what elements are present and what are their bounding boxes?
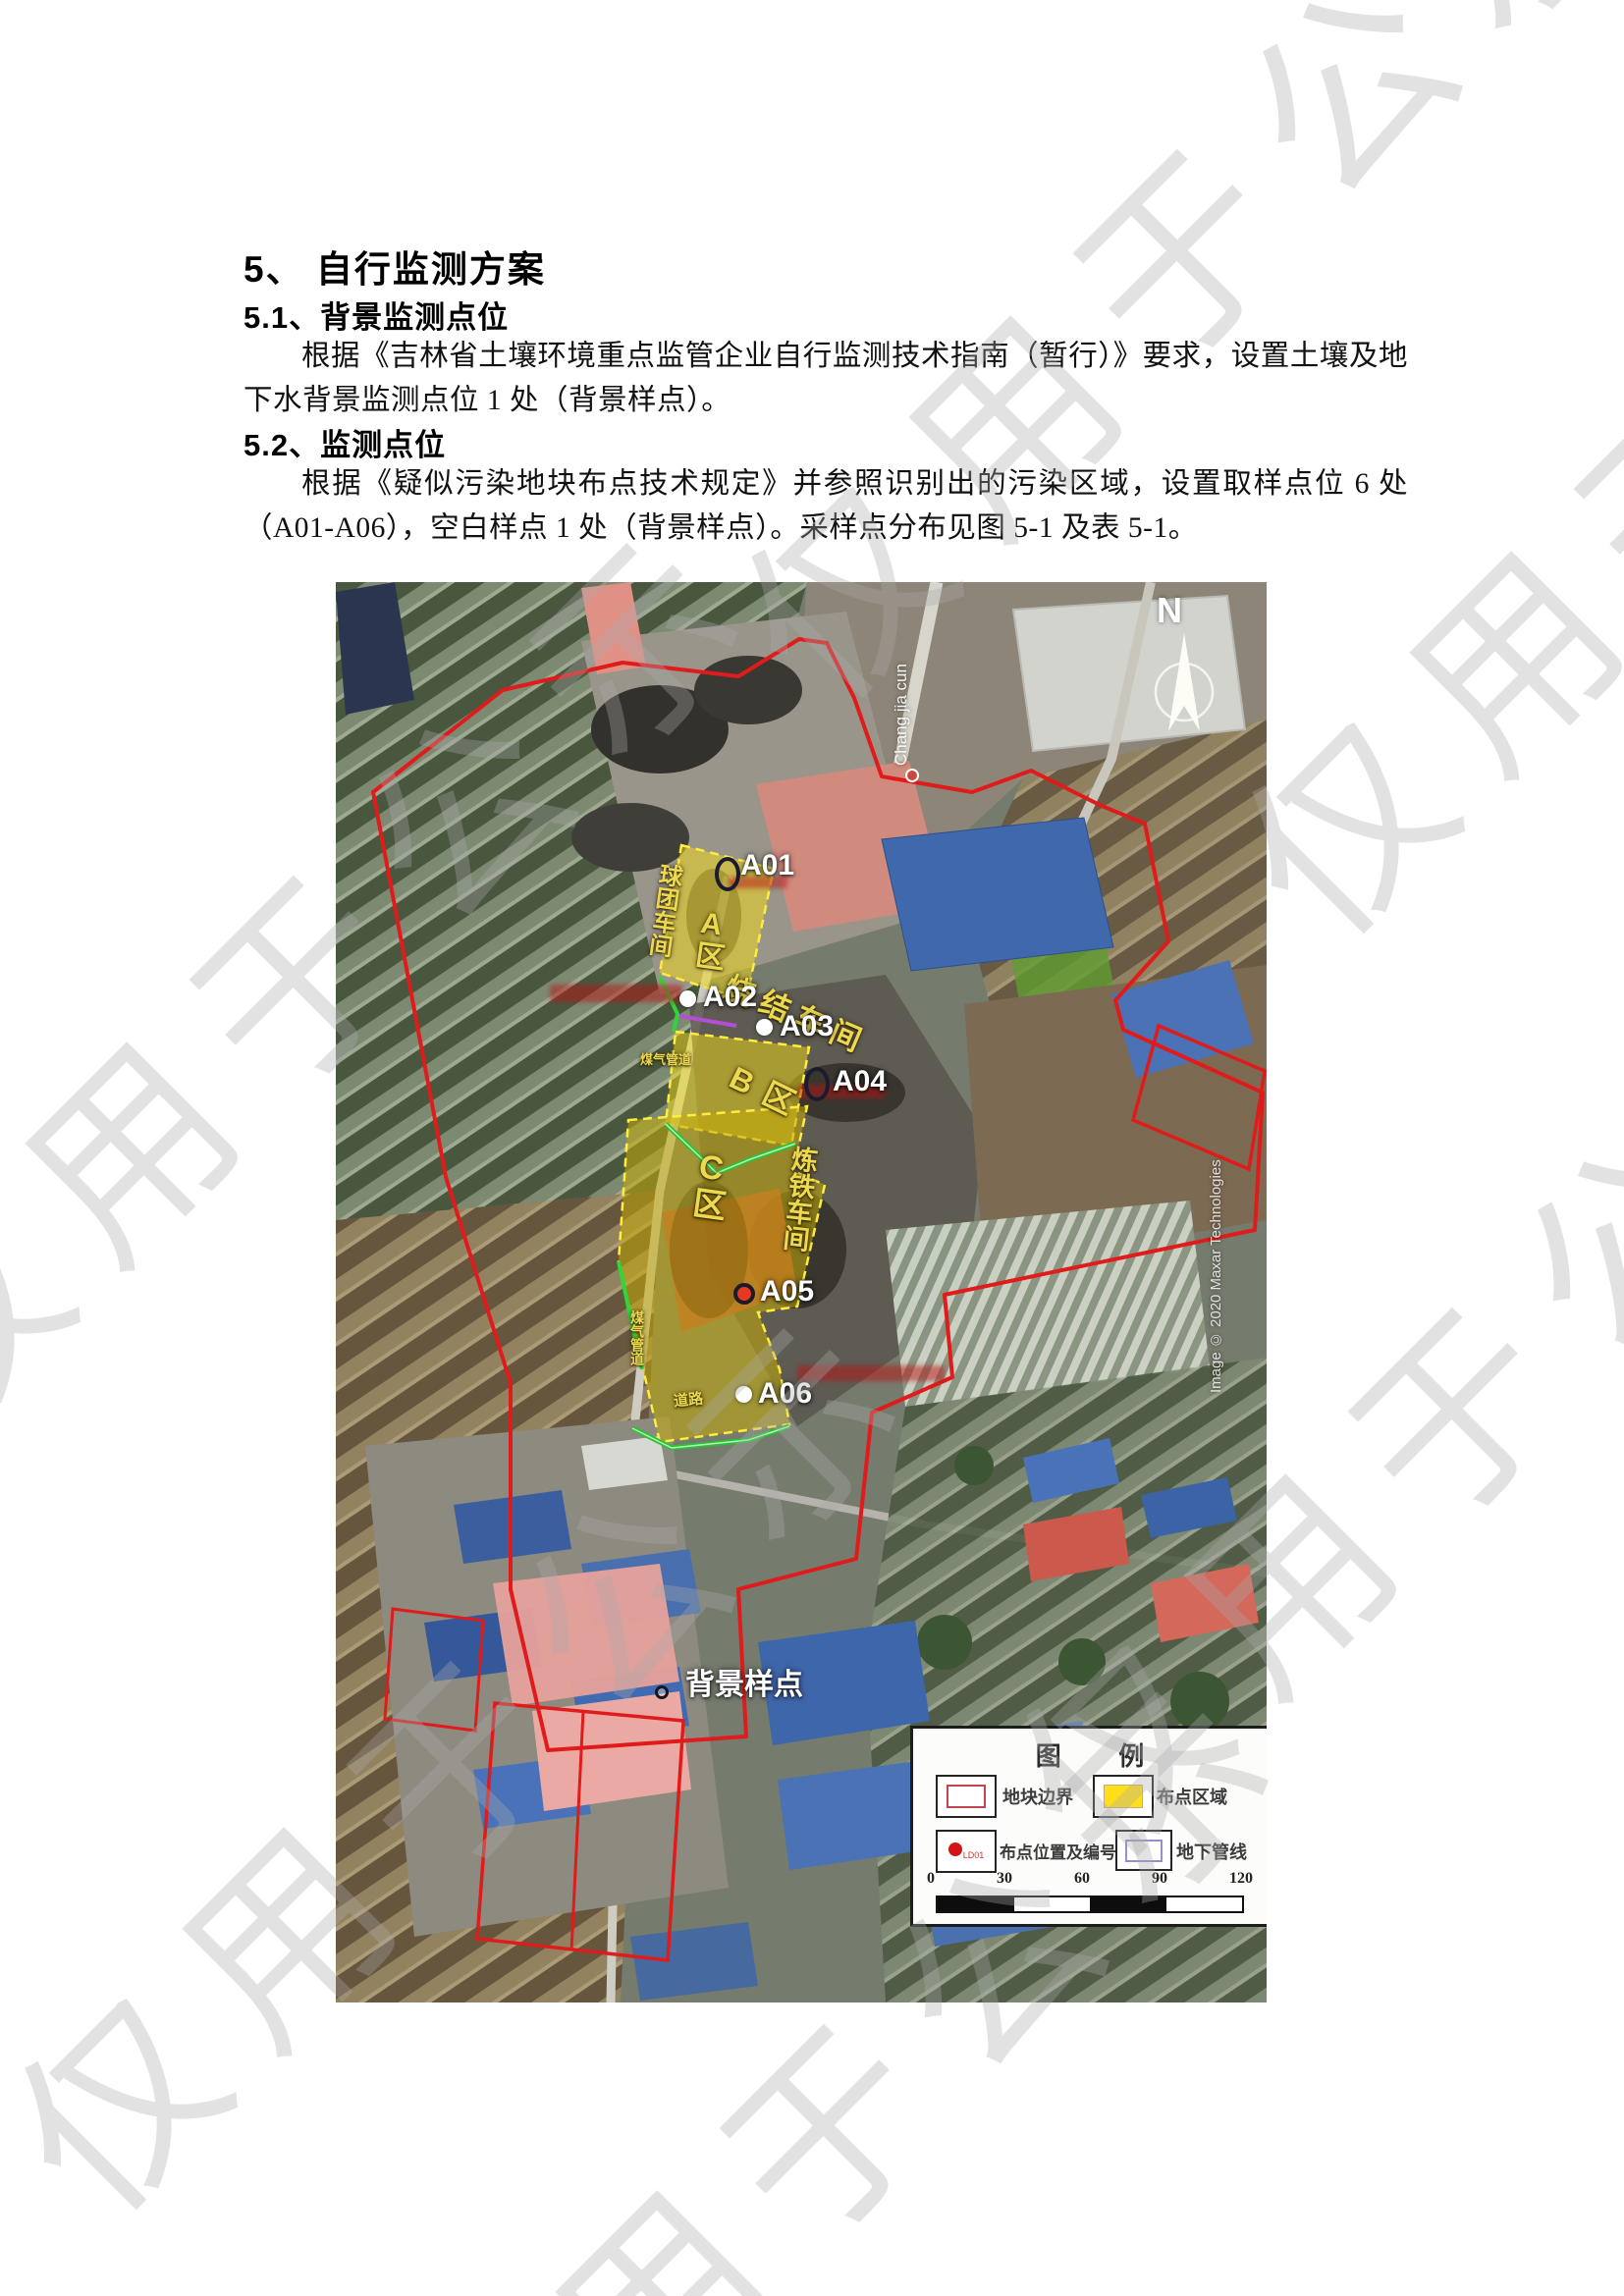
label-road: 道路: [673, 1387, 704, 1411]
subsection-heading-5-2: 5.2、监测点位: [244, 420, 446, 464]
marker-A03: [756, 1019, 773, 1036]
label-gas-pipeline-v: 煤气管道: [627, 1310, 647, 1365]
red-annotation: [797, 1365, 945, 1381]
point-label-background-sample: 背景样点: [685, 1660, 803, 1703]
subsection-heading-5-1: 5.1、背景监测点位: [244, 293, 509, 337]
scale-tick: 90: [1152, 1870, 1167, 1888]
scale-tick: 30: [997, 1870, 1012, 1888]
north-label: N: [1157, 590, 1182, 631]
point-label-A01: A01: [740, 849, 794, 882]
marker-A04: [804, 1067, 830, 1101]
legend-label-sampling-point: 布点位置及编号: [1000, 1839, 1116, 1863]
label-gas-pipeline-h: 煤气管道: [640, 1049, 691, 1068]
legend-swatch-site-boundary: [936, 1775, 997, 1818]
report-page: 5、 自行监测方案 5.1、背景监测点位 根据《吉林省土壤环境重点监管企业自行监…: [0, 0, 1624, 2296]
red-annotation: [550, 985, 682, 1002]
north-arrow-icon: [1145, 631, 1223, 754]
marker-A02: [679, 990, 696, 1007]
point-label-A06: A06: [758, 1377, 812, 1411]
zone-a-label: A区: [683, 905, 734, 973]
section-heading: 5、 自行监测方案: [244, 240, 546, 293]
legend-label-underground-pipeline: 地下管线: [1176, 1839, 1247, 1864]
zone-c-label: C区: [680, 1147, 738, 1223]
marker-A05: [733, 1283, 755, 1305]
legend-red-dot-icon: [948, 1842, 962, 1856]
marker-background-sample: [655, 1685, 669, 1699]
map-pin-icon: [905, 769, 919, 782]
point-label-A05: A05: [760, 1275, 814, 1308]
scale-tick: 0: [927, 1870, 935, 1888]
site-map-figure: 球团车间 A区 烧结车间 B区 C区 炼铁车间 煤气管道 煤气管道 道路 A01…: [336, 582, 1267, 2002]
legend-swatch-underground-pipeline: [1115, 1830, 1172, 1871]
marker-A01: [715, 857, 740, 891]
legend-label-site-boundary: 地块边界: [1002, 1784, 1073, 1809]
paragraph-5-2: 根据《疑似污染地块布点技术规定》并参照识别出的污染区域，设置取样点位 6 处（A…: [244, 462, 1408, 551]
point-label-A02: A02: [703, 981, 757, 1014]
scale-bar: [936, 1896, 1244, 1913]
imagery-attribution: Image © 2020 Maxar Technologies: [1208, 932, 1224, 1393]
street-name-label: Chang jia cun: [892, 604, 911, 766]
legend-swatch-sampling-area: [1093, 1775, 1154, 1818]
paragraph-5-1: 根据《吉林省土壤环境重点监管企业自行监测技术指南（暂行）》要求，设置土壤及地下水…: [244, 335, 1408, 423]
legend-sample-point-id: LD01: [963, 1850, 985, 1860]
legend-swatch-sampling-point: LD01: [936, 1830, 997, 1873]
scale-tick: 60: [1074, 1870, 1090, 1888]
legend-label-sampling-area: 布点区域: [1157, 1784, 1227, 1809]
map-legend: 图 例 地块边界 布点区域 LD01 布点位置及编号 地下管线 0 30 60 …: [910, 1726, 1267, 1927]
point-label-A03: A03: [780, 1010, 834, 1043]
scale-tick: 120: [1229, 1870, 1253, 1888]
marker-A06: [735, 1386, 752, 1403]
scale-bar-ticks: 0 30 60 90 120: [927, 1870, 1253, 1888]
point-label-A04: A04: [833, 1065, 887, 1098]
legend-title: 图 例: [913, 1736, 1267, 1773]
